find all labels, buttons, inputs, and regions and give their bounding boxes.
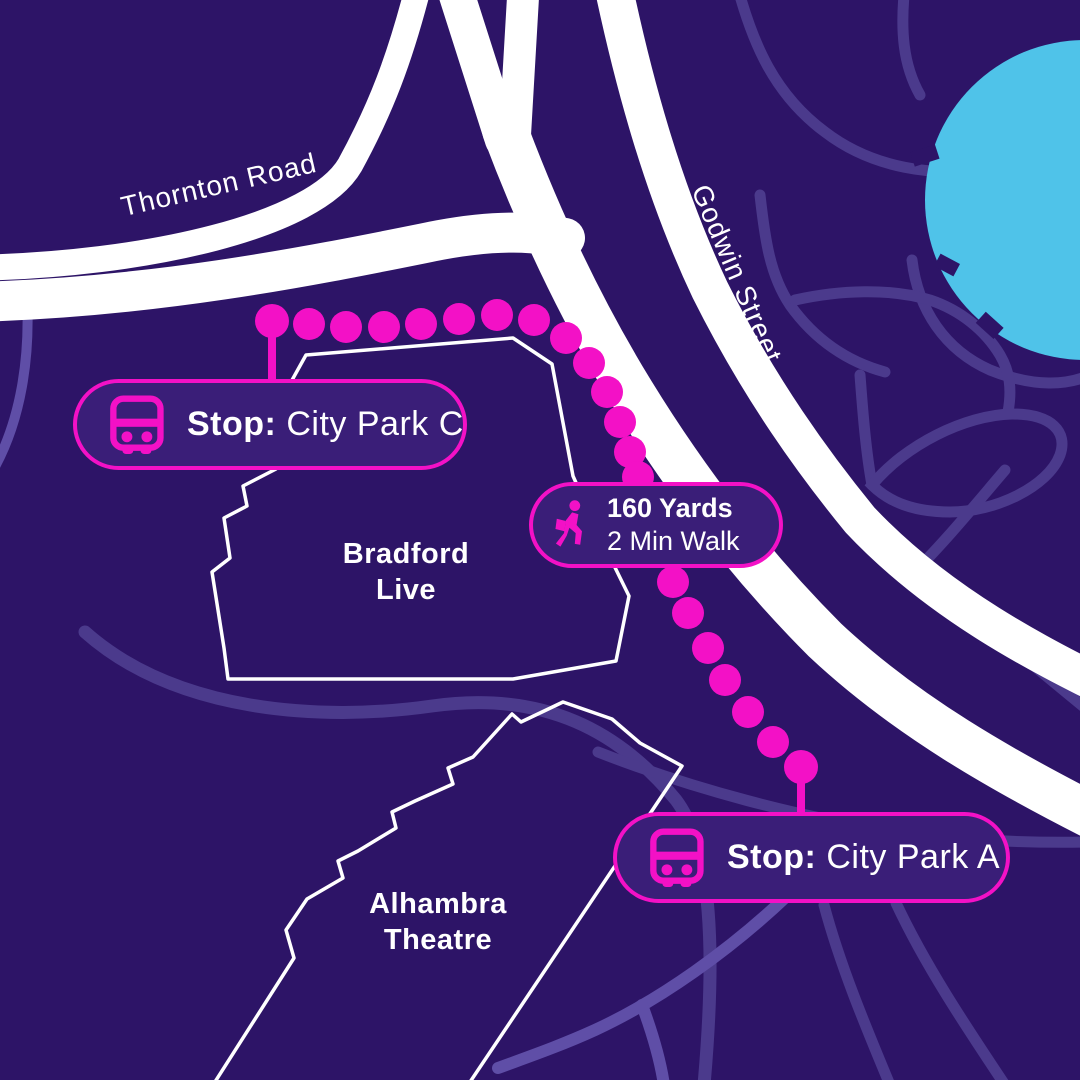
walking-person-icon xyxy=(555,498,591,552)
walk-distance: 160 Yards xyxy=(607,492,740,525)
stop-label-prefix: Stop: xyxy=(187,405,276,443)
stop-label-name: City Park C xyxy=(286,405,463,443)
building-label-line: Live xyxy=(300,572,512,608)
stop-marker-city-park-a: Stop:City Park A xyxy=(613,812,1010,903)
building-label-line: Alhambra xyxy=(328,886,548,922)
stop-label: Stop:City Park C xyxy=(187,405,464,444)
building-label-bradford-live: Bradford Live xyxy=(300,536,512,609)
stop-label-name: City Park A xyxy=(826,838,1000,876)
stop-label: Stop:City Park A xyxy=(727,838,1000,877)
transit-map: Thornton Road Godwin Street Bradford Liv… xyxy=(0,0,1080,1080)
bus-icon xyxy=(107,395,165,455)
building-label-alhambra-theatre: Alhambra Theatre xyxy=(328,886,548,959)
stop-label-prefix: Stop: xyxy=(727,838,816,876)
walk-distance-badge: 160 Yards 2 Min Walk xyxy=(529,482,783,568)
building-label-line: Bradford xyxy=(300,536,512,572)
bus-icon xyxy=(647,828,705,888)
water-body xyxy=(910,40,1080,360)
stop-marker-city-park-c: Stop:City Park C xyxy=(73,379,467,470)
building-label-line: Theatre xyxy=(328,922,548,958)
walk-duration: 2 Min Walk xyxy=(607,525,740,558)
walk-badge-text: 160 Yards 2 Min Walk xyxy=(607,492,740,558)
